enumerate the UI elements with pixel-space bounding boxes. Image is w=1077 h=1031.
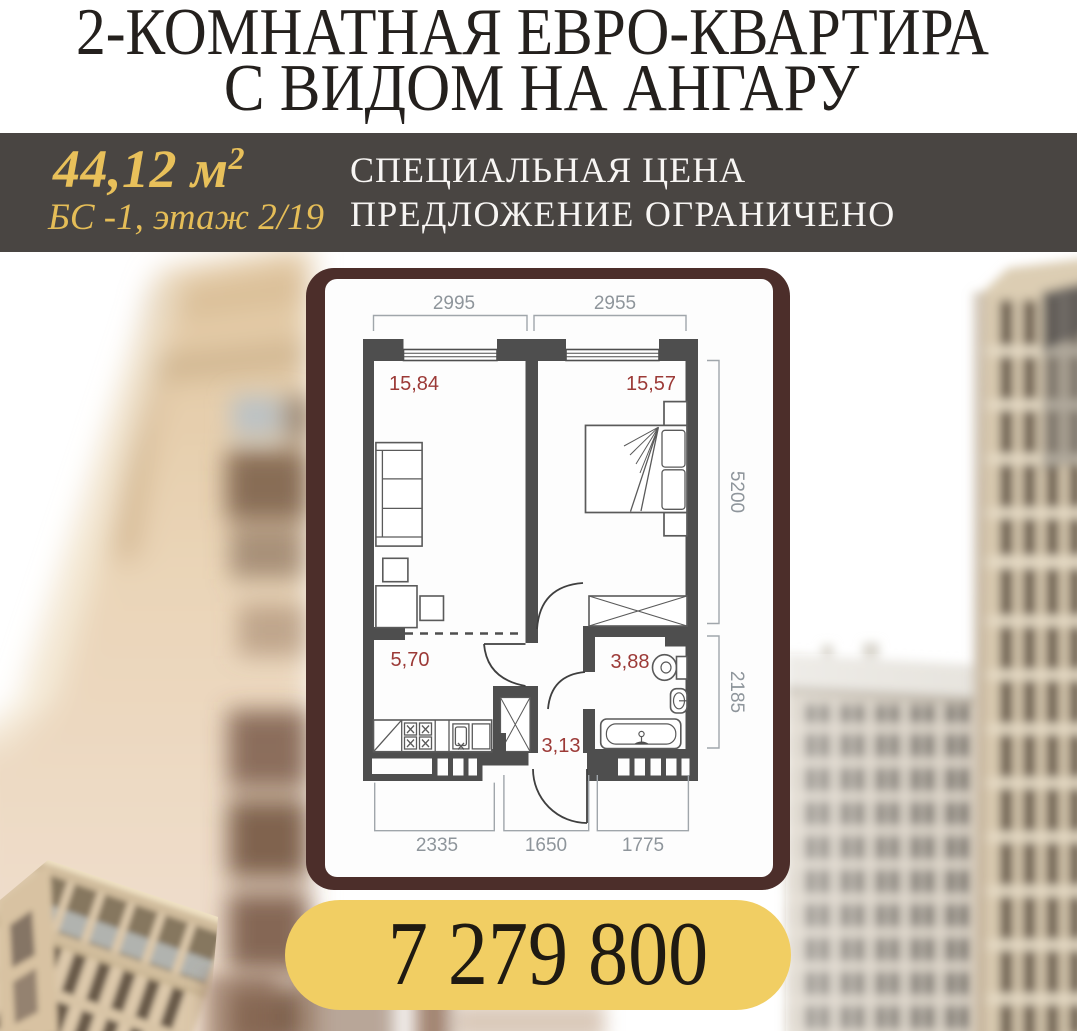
- svg-text:1775: 1775: [622, 835, 664, 856]
- svg-text:15,84: 15,84: [389, 373, 439, 395]
- svg-text:5200: 5200: [726, 471, 747, 513]
- svg-text:2185: 2185: [726, 671, 747, 713]
- svg-text:2995: 2995: [433, 293, 475, 314]
- svg-text:5,70: 5,70: [391, 649, 430, 671]
- svg-text:3,88: 3,88: [611, 651, 650, 673]
- svg-text:2335: 2335: [416, 835, 458, 856]
- svg-text:15,57: 15,57: [626, 373, 676, 395]
- svg-text:1650: 1650: [525, 835, 567, 856]
- svg-text:3,13: 3,13: [542, 735, 581, 757]
- svg-text:2955: 2955: [594, 293, 636, 314]
